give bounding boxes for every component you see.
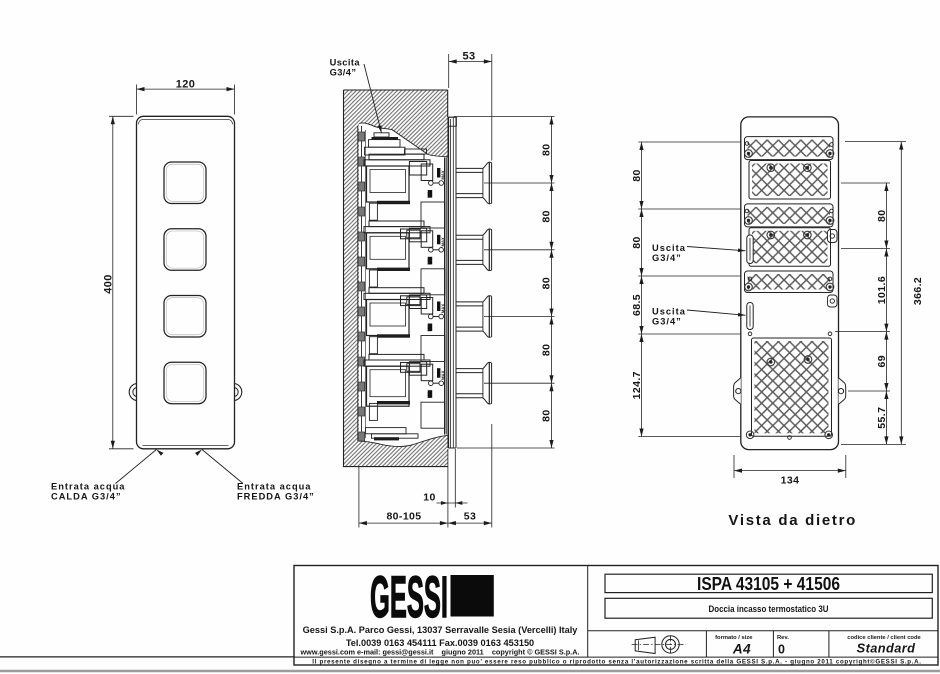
svg-text:101.6: 101.6	[876, 276, 888, 304]
svg-text:Tel.0039 0163 454111 Fax.00: Tel.0039 0163 454111 Fax.0039 0163 45315…	[346, 638, 534, 648]
svg-text:G3/4”: G3/4”	[652, 316, 682, 326]
svg-text:G3/4”: G3/4”	[652, 253, 682, 263]
svg-text:134: 134	[781, 474, 800, 486]
svg-text:69: 69	[876, 355, 888, 367]
svg-text:366.2: 366.2	[912, 277, 924, 305]
svg-text:120: 120	[176, 79, 196, 91]
svg-text:80: 80	[631, 169, 643, 181]
svg-text:80: 80	[541, 210, 553, 222]
svg-text:Gessi S.p.A. Parco Gessi,: Gessi S.p.A. Parco Gessi, 13037 Serraval…	[303, 625, 579, 635]
svg-text:80: 80	[541, 344, 553, 356]
svg-text:0: 0	[778, 642, 785, 656]
svg-text:MIN: MIN	[427, 324, 432, 332]
svg-text:A4: A4	[732, 641, 751, 656]
svg-text:Uscita: Uscita	[652, 307, 686, 317]
svg-text:Entrata acqua: Entrata acqua	[51, 482, 125, 492]
svg-text:www.gessi.com e-mail: gessi@: www.gessi.com e-mail: gessi@gessi.it giu…	[299, 648, 579, 657]
svg-text:400: 400	[103, 274, 115, 294]
svg-text:MIN: MIN	[427, 390, 432, 398]
svg-text:Entrata acqua: Entrata acqua	[237, 482, 311, 492]
svg-text:CALDA G3/4”: CALDA G3/4”	[51, 491, 122, 501]
svg-text:10: 10	[423, 492, 435, 504]
svg-text:Standard: Standard	[857, 641, 916, 656]
svg-text:Vista da dietro: Vista da dietro	[728, 512, 857, 529]
svg-text:Doccia incasso termostatico 3U: Doccia incasso termostatico 3U	[709, 604, 829, 615]
svg-text:formato / size: formato / size	[715, 635, 753, 641]
svg-text:68.5: 68.5	[631, 294, 643, 316]
svg-text:Rev.: Rev.	[777, 635, 789, 641]
svg-text:53: 53	[464, 510, 476, 522]
svg-text:Uscita: Uscita	[652, 243, 686, 253]
svg-text:MIN: MIN	[427, 190, 432, 198]
svg-text:53: 53	[462, 51, 475, 63]
svg-text:80: 80	[541, 277, 553, 289]
svg-text:GESSI: GESSI	[370, 565, 448, 630]
svg-text:55.7: 55.7	[876, 407, 888, 429]
svg-text:MIN: MIN	[427, 257, 432, 265]
svg-text:FREDDA G3/4”: FREDDA G3/4”	[237, 491, 315, 501]
svg-text:Uscita: Uscita	[330, 58, 361, 68]
svg-text:80-105: 80-105	[386, 510, 421, 522]
svg-text:124.7: 124.7	[631, 371, 643, 399]
svg-text:80: 80	[541, 144, 553, 156]
svg-text:80: 80	[876, 210, 888, 222]
svg-text:Il presente disegno a term: Il presente disegno a termine di legge n…	[312, 659, 921, 666]
svg-text:80: 80	[541, 409, 553, 421]
svg-text:80: 80	[631, 236, 643, 248]
svg-text:ISPA 43105 + 41506: ISPA 43105 + 41506	[697, 573, 840, 594]
svg-text:G3/4”: G3/4”	[330, 67, 357, 77]
